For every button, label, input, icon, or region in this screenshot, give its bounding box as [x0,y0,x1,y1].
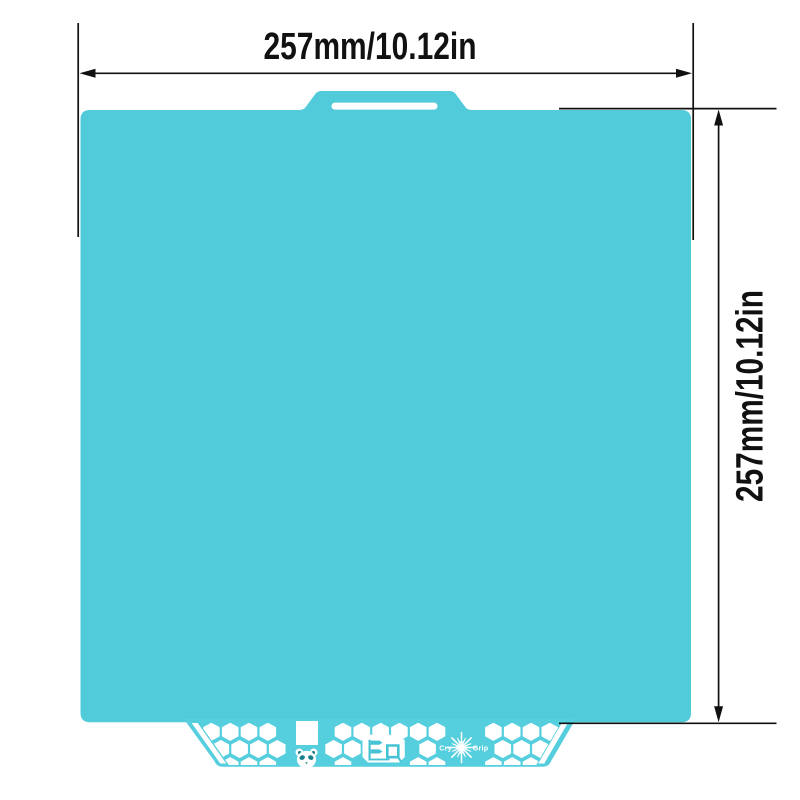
svg-text:257mm/10.12in: 257mm/10.12in [264,26,477,68]
svg-text:Grip: Grip [473,743,489,752]
svg-text:Cry: Cry [439,743,452,752]
svg-text:257mm/10.12in: 257mm/10.12in [730,290,772,502]
